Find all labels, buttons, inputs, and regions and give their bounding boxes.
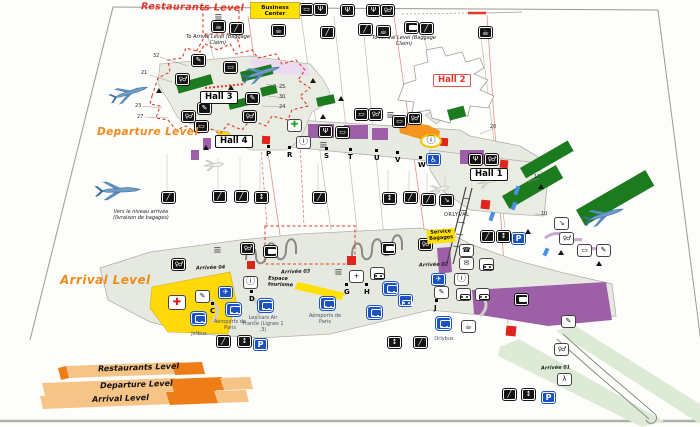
- cars-air-france-stop-icon: [258, 299, 273, 312]
- restaurants-level-title: Restaurants Level: [141, 1, 244, 14]
- escalator-icon: ╱: [162, 192, 175, 203]
- moving-walkway-icon: λ: [558, 374, 571, 385]
- restaurant-icon: Ψ: [341, 5, 354, 16]
- toilets-icon: ♀♂: [369, 109, 382, 120]
- information-desk-icon: ⓘ: [420, 134, 442, 148]
- toilets-icon: ♀♂: [243, 111, 256, 122]
- orlybus-stop-icon: [436, 317, 451, 330]
- checkin-desks-icon: ≡: [317, 140, 330, 151]
- gate-number: 24: [279, 104, 285, 110]
- bar-icon: ☕: [377, 26, 390, 37]
- arrival-level-title: Arrival Level: [60, 273, 151, 287]
- bar-icon: ☕: [212, 21, 225, 32]
- phone-icon: ☎: [460, 245, 473, 256]
- gate-letter-r: R: [287, 151, 292, 159]
- toilets-icon: ♀♂: [182, 111, 195, 122]
- aeroports-de-paris-stop-2-label: Aéroports de Paris: [306, 313, 344, 325]
- orlyval-label: ORLYVAL: [444, 212, 469, 218]
- gate-letter-d: D: [249, 295, 255, 303]
- smoking-area-icon: ✎: [435, 287, 448, 298]
- escalator-icon: ╱: [321, 27, 334, 38]
- gate-number: 20: [490, 124, 496, 130]
- gate-letter-p: P: [266, 150, 271, 158]
- bar-icon: ☕: [479, 27, 492, 38]
- restaurant-icon: Ψ: [469, 154, 482, 165]
- car-rental-icon: [480, 259, 493, 270]
- parking-icon: P: [512, 233, 525, 244]
- gate-letter-t: T: [348, 153, 353, 161]
- escalator-icon: ╱: [481, 231, 494, 242]
- airport-terminal-map: Restaurants Level Departure Level Arriva…: [0, 0, 700, 427]
- hall-label: Hall 1: [470, 168, 508, 181]
- elevator-icon: ↕: [388, 337, 401, 348]
- escalator-icon: ╱: [404, 192, 417, 203]
- shuttle-bus-icon: [457, 289, 470, 300]
- jetbus-stop-icon: [191, 312, 206, 325]
- arrival-exit-label: Arrivée 02: [419, 261, 448, 268]
- orlyval-walkways: [498, 325, 700, 427]
- escalator-icon: ╱: [235, 191, 248, 202]
- escalator-icon: ╱: [503, 389, 516, 400]
- gate-letter-g: G: [344, 288, 350, 296]
- gate-letter-c: C: [210, 307, 215, 315]
- arrival-exit-label: Arrivée 04: [196, 264, 225, 271]
- escalator-icon: ╱: [359, 24, 372, 35]
- stairs-icon: ↘: [555, 218, 568, 229]
- toilets-icon: ♀♂: [176, 74, 189, 85]
- toilets-icon: ♀♂: [408, 113, 421, 124]
- shuttle-bus-icon: [383, 282, 398, 295]
- smoking-area-icon: ✎: [192, 55, 205, 66]
- flight-connections-icon: ✈: [432, 274, 445, 285]
- mail-icon: ✉: [460, 258, 473, 269]
- jetbus-stop-label: Jetbus: [184, 331, 214, 337]
- gate-letter-u: U: [374, 154, 380, 162]
- first-aid-icon: ✚: [169, 296, 185, 309]
- restaurant-icon: Ψ: [367, 5, 380, 16]
- toilets-icon: ♀♂: [560, 233, 573, 244]
- gate-letter-s: S: [324, 152, 329, 160]
- flight-connections-icon: ✈: [219, 287, 232, 298]
- gate-letter-v: V: [395, 156, 400, 164]
- wheelchair-access-icon: ♿: [427, 154, 440, 165]
- restaurant-icon: Ψ: [319, 126, 332, 137]
- baggage-carousel-icon: [264, 246, 277, 257]
- gate-letter-j: J: [434, 304, 437, 312]
- smoking-area-icon: ✎: [597, 245, 610, 256]
- smoking-area-icon: ✎: [196, 291, 209, 302]
- gate-number: 27: [137, 114, 143, 120]
- escalator-icon: ╱: [230, 23, 243, 34]
- business-center-badge: Business Center: [250, 2, 300, 19]
- hall-label: Hall 3: [200, 91, 238, 104]
- bar-icon: ☕: [462, 321, 475, 332]
- departure-level-title: Departure Level: [97, 126, 198, 138]
- meeting-point-icon: +: [350, 271, 363, 282]
- parking-icon: P: [254, 339, 267, 350]
- toilets-icon: ♀♂: [241, 243, 254, 254]
- escalator-icon: ╱: [422, 194, 435, 205]
- pharmacy-icon: ✚: [288, 120, 301, 131]
- stairs-icon: ↘: [440, 195, 453, 206]
- hall-label: Hall 2: [433, 74, 471, 87]
- to-arrival-note: To Arrival Level (Baggage Claim): [186, 34, 250, 47]
- information-icon: ⓘ: [455, 274, 468, 285]
- orlybus-stop-label: Orlybus: [426, 336, 462, 342]
- gate-number: 32: [153, 53, 159, 59]
- toilets-icon: ♀♂: [172, 259, 185, 270]
- taxi-icon: [399, 295, 412, 306]
- escalator-icon: ╱: [213, 191, 226, 202]
- car-rental-icon: [371, 268, 384, 279]
- elevator-icon: ↕: [383, 193, 396, 204]
- shuttle-bus-icon: [367, 306, 382, 319]
- gate-number: 25: [279, 84, 285, 90]
- escalator-icon: ╱: [313, 192, 326, 203]
- smoking-area-icon: ✎: [246, 93, 259, 104]
- flight-info-monitor-icon: ▭: [393, 116, 406, 127]
- restaurant-icon: Ψ: [314, 4, 327, 15]
- gate-letter-w: W: [418, 161, 426, 169]
- aeroports-de-paris-stop-2-icon: [320, 297, 335, 310]
- elevator-icon: ↕: [238, 336, 251, 347]
- flight-info-monitor-icon: ▭: [300, 4, 313, 15]
- aeroports-de-paris-stop-icon: [226, 303, 241, 316]
- parking-icon: P: [542, 392, 555, 403]
- gate-number: 23: [135, 103, 141, 109]
- flight-info-monitor-icon: ▭: [578, 245, 591, 256]
- gate-number: 30: [279, 94, 285, 100]
- baggage-claim-icon: [405, 22, 418, 33]
- flight-info-monitor-icon: ▭: [336, 127, 349, 138]
- arrival-exit-label: Arrivée 01: [541, 364, 570, 371]
- bar-icon: ☕: [272, 25, 285, 36]
- escalator-icon: ╱: [217, 336, 230, 347]
- gate-number: 21: [141, 70, 147, 76]
- flight-info-monitor-icon: ▭: [355, 109, 368, 120]
- toilets-icon: ♀♂: [381, 5, 394, 16]
- flight-info-monitor-icon: ▭: [224, 62, 237, 73]
- smoking-area-icon: ✎: [198, 103, 211, 114]
- escalator-icon: ╱: [420, 23, 433, 34]
- toilets-icon: ♀♂: [555, 344, 568, 355]
- cars-air-france-stop-label: Les cars Air France (Lignes 1 ,3): [242, 315, 284, 333]
- elevator-icon: ↕: [255, 192, 268, 203]
- connector-lines: [167, 154, 445, 195]
- information-icon: ⓘ: [297, 137, 310, 148]
- baggage-carousel-icon: [382, 243, 395, 254]
- information-icon: ⓘ: [244, 277, 257, 288]
- hall-label: Hall 4: [215, 135, 253, 148]
- vers-niveau-note: Vers le niveau arrivée (livraison de bag…: [102, 209, 180, 222]
- shop-shelves-icon: ≡: [211, 245, 224, 256]
- gate-number: 11: [534, 174, 540, 180]
- car-rental-icon: [476, 289, 489, 300]
- elevator-icon: ↕: [522, 389, 535, 400]
- espace-tourisme-label: Espace tourisme: [268, 276, 300, 289]
- gate-number: 10: [541, 211, 547, 217]
- baggage-icon: [515, 294, 528, 305]
- toilets-icon: ♀♂: [485, 154, 498, 165]
- smoking-area-icon: ✎: [562, 316, 575, 327]
- shop-shelves-icon: ≡: [332, 267, 345, 278]
- service-bagages-badge: Service Bagages: [427, 228, 456, 243]
- gate-letter-h: H: [364, 288, 370, 296]
- elevator-icon: ↕: [497, 231, 510, 242]
- arrival-exit-label: Arrivée 03: [281, 268, 310, 275]
